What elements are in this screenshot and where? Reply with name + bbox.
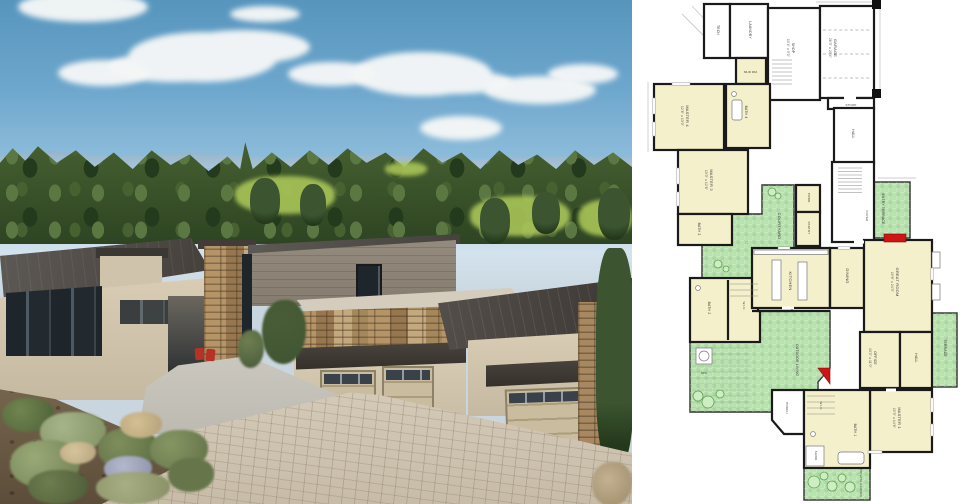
svg-text:W.I.C.: W.I.C. — [819, 401, 823, 410]
room-bath3 — [678, 214, 732, 245]
juniper-tree — [532, 192, 560, 234]
room-label-entry-terrace: ENTRY TERRACE — [881, 193, 885, 225]
svg-text:HALL: HALL — [851, 129, 855, 138]
svg-text:W.I.C.: W.I.C. — [742, 301, 746, 310]
room-label-shower: SHWR. — [814, 451, 818, 462]
svg-text:HALL: HALL — [914, 353, 918, 362]
juniper-tree — [300, 184, 326, 226]
svg-text:BATH 2: BATH 2 — [707, 302, 711, 315]
kitchen-island — [798, 262, 807, 300]
svg-text:PRIVATE GARDEN: PRIVATE GARDEN — [859, 469, 863, 497]
bathtub — [838, 452, 864, 464]
svg-text:GARAGE: GARAGE — [833, 39, 838, 57]
room-label-dining: DINING — [845, 268, 850, 283]
juniper-tree — [598, 188, 630, 240]
svg-text:15'0" x 14'6": 15'0" x 14'6" — [892, 408, 896, 428]
pier — [872, 0, 881, 9]
floor-plan: GARAGE26'0" x 25'4" TECH LAUNDRY SHOP10'… — [632, 0, 960, 504]
room-label-spa: SPA — [701, 371, 707, 375]
room-label-powder: PWDR. — [807, 193, 811, 204]
grass-clump — [120, 412, 162, 438]
room-label-mud: MUD RM. — [744, 70, 758, 74]
svg-text:OFFICE: OFFICE — [873, 351, 877, 365]
kitchen-island — [772, 260, 781, 300]
room-label-foyer: FOYER — [865, 211, 869, 222]
room-label-bath4: BATH 4 — [744, 106, 748, 119]
room-label-kitchen: KITCHEN — [788, 272, 793, 291]
svg-text:13'0" x 12'6": 13'0" x 12'6" — [704, 170, 708, 190]
svg-text:10'4" x 9'0": 10'4" x 9'0" — [786, 39, 790, 57]
svg-text:PANTRY: PANTRY — [807, 222, 811, 235]
svg-text:DINING: DINING — [845, 268, 850, 283]
golf-course-clearing — [385, 162, 427, 176]
room-label-laundry: LAUNDRY — [748, 21, 752, 39]
room-label-pantry: PANTRY — [807, 222, 811, 235]
svg-text:12'6" x 13'0": 12'6" x 13'0" — [680, 106, 684, 126]
juniper-tree — [480, 198, 510, 244]
svg-text:26'0" x 25'4": 26'0" x 25'4" — [828, 38, 832, 58]
garage-door-window-strip — [324, 374, 372, 384]
svg-text:MASTER 1: MASTER 1 — [897, 407, 902, 429]
svg-text:19'6" x 24'0": 19'6" x 24'0" — [890, 272, 894, 292]
svg-text:MUD RM.: MUD RM. — [744, 70, 758, 74]
juniper-tree — [596, 248, 632, 466]
cloud — [420, 116, 502, 140]
red-chair — [205, 349, 215, 362]
svg-text:KITCHEN: KITCHEN — [788, 272, 793, 291]
cloud — [58, 60, 148, 86]
room-label-bath1: BATH 1 — [853, 424, 857, 437]
house-photo — [0, 0, 632, 504]
room-shop — [768, 8, 820, 100]
foyer — [832, 162, 874, 242]
floor-plan-panel: GARAGE26'0" x 25'4" TECH LAUNDRY SHOP10'… — [632, 0, 960, 504]
svg-text:BATH 4: BATH 4 — [744, 106, 748, 119]
room-label-bath2: BATH 2 — [707, 302, 711, 315]
svg-text:PORCH: PORCH — [785, 402, 789, 413]
room-office — [860, 332, 900, 388]
toilet — [732, 92, 737, 97]
room-label-outdoor-living: OUTDOOR LIVING — [795, 344, 799, 376]
toilet — [811, 432, 816, 437]
svg-text:PWDR.: PWDR. — [807, 193, 811, 204]
svg-text:FOYER: FOYER — [865, 211, 869, 222]
grass-clump — [592, 462, 632, 504]
svg-text:SHWR.: SHWR. — [814, 451, 818, 462]
svg-text:ENTRY TERRACE: ENTRY TERRACE — [881, 193, 885, 225]
room-label-bath3: BATH 3 — [697, 223, 701, 236]
svg-text:BATH 3: BATH 3 — [697, 223, 701, 236]
composite-image: GARAGE26'0" x 25'4" TECH LAUNDRY SHOP10'… — [0, 0, 960, 504]
svg-text:MASTER 3: MASTER 3 — [709, 169, 714, 191]
room-label-wic2: W.I.C. — [742, 301, 746, 310]
room-label-stoop: STOOP — [845, 103, 856, 107]
cloud — [230, 6, 300, 22]
room-label-terrace: TERRACE — [943, 339, 947, 357]
red-chair — [195, 348, 205, 361]
garage-door-window-strip — [386, 370, 430, 380]
svg-text:GREAT ROOM: GREAT ROOM — [895, 268, 900, 297]
juniper-tree — [250, 178, 280, 224]
left-wing-windows — [6, 286, 102, 356]
svg-text:13'2" x 11'0": 13'2" x 11'0" — [868, 348, 872, 368]
pier — [872, 89, 881, 98]
spa-tub — [699, 351, 709, 361]
room-label-porch: PORCH — [785, 402, 789, 413]
svg-text:TECH: TECH — [716, 25, 720, 35]
svg-text:BATH 1: BATH 1 — [853, 424, 857, 437]
svg-text:MASTER 4: MASTER 4 — [685, 105, 690, 127]
great-room-fireplace — [884, 234, 906, 242]
window-seat — [932, 284, 940, 300]
cloud — [18, 0, 148, 22]
svg-text:COURTYARD: COURTYARD — [777, 213, 782, 240]
svg-text:SPA: SPA — [701, 371, 707, 375]
svg-text:TERRACE: TERRACE — [943, 339, 947, 357]
window-seat — [932, 252, 940, 268]
svg-text:LAUNDRY: LAUNDRY — [748, 21, 752, 39]
room-label-tech: TECH — [716, 25, 720, 35]
svg-text:OUTDOOR LIVING: OUTDOOR LIVING — [795, 344, 799, 376]
room-label-gallery-hall: HALL — [851, 129, 855, 138]
svg-text:SHOP: SHOP — [791, 43, 795, 54]
cloud — [128, 32, 278, 82]
room-label-hall: HALL — [914, 353, 918, 362]
cloud — [548, 64, 618, 84]
tub — [732, 100, 742, 120]
cloud — [352, 52, 492, 96]
room-label-private-garden: PRIVATE GARDEN — [859, 469, 863, 497]
room-label-courtyard: COURTYARD — [777, 213, 782, 240]
room-label-wic1: W.I.C. — [819, 401, 823, 410]
svg-text:STOOP: STOOP — [845, 103, 856, 107]
toilet — [696, 286, 701, 291]
